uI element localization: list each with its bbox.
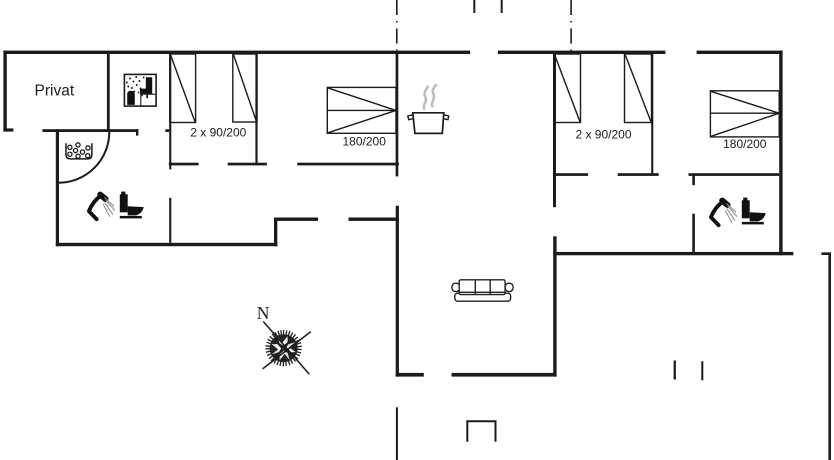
svg-text:180/200: 180/200 bbox=[723, 137, 767, 151]
svg-text:2 x 90/200: 2 x 90/200 bbox=[190, 126, 246, 140]
svg-text:180/200: 180/200 bbox=[343, 134, 387, 148]
svg-text:Privat: Privat bbox=[35, 83, 75, 100]
svg-text:2 x 90/200: 2 x 90/200 bbox=[575, 127, 631, 141]
svg-text:N: N bbox=[257, 303, 270, 323]
